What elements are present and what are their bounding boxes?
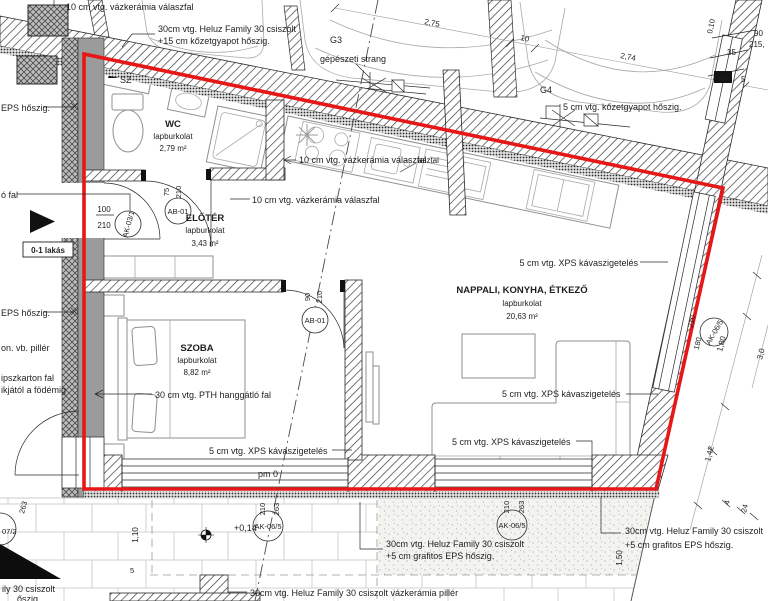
- room-szoba-name: SZOBA: [180, 343, 213, 354]
- szoba-nappali-wall: [345, 280, 362, 460]
- label-xps-c: 5 cm vtg. XPS kávaszigetelés: [209, 446, 328, 456]
- toilet-bowl: [113, 110, 143, 152]
- column-pad: [17, 56, 57, 84]
- label-xps-b: 5 cm vtg. XPS kávaszigetelés: [452, 437, 571, 447]
- dim-1-42: 1,42: [703, 445, 716, 463]
- pillow: [132, 393, 158, 433]
- label-pth: 30 cm vtg. PTH hanggátló fal: [155, 390, 271, 400]
- label-pm0: pm 0: [258, 469, 278, 479]
- label-heluz-grafit-mid-2: +5 cm grafitos EPS hőszig.: [386, 551, 494, 561]
- label-partial-csiszolt: ily 30 csiszolt: [2, 584, 56, 594]
- svg-text:AK-06/5: AK-06/5: [498, 521, 525, 530]
- hall-cabinet: [97, 256, 213, 278]
- room-nappali-finish: lapburkolat: [502, 299, 542, 308]
- label-xps-a: 5 cm vtg. XPS kávaszigetelés: [502, 389, 621, 399]
- dim-entrance-w: 100: [97, 205, 111, 214]
- label-partial-hoszig: őszig.: [17, 594, 41, 601]
- label-heluz-grafit-mid-1: 30cm vtg. Heluz Family 30 csiszolt: [386, 539, 525, 549]
- room-eloter-area: 3,43 m²: [191, 239, 218, 248]
- label-terrace-level: +0,14: [234, 523, 257, 533]
- label-kozetgyapot5: 5 cm vtg. kőzetgyapot hőszig.: [563, 102, 682, 112]
- ceiling-light-icon: [296, 124, 318, 146]
- dim-entrance-h: 210: [97, 221, 111, 230]
- room-wc-area: 2,79 m²: [159, 144, 186, 153]
- room-eloter-name: ELŐTÉR: [186, 212, 225, 224]
- shower-partition: [266, 100, 284, 180]
- svg-text:07/2: 07/2: [2, 527, 17, 536]
- label-heluz-grafit-right-1: 30cm vtg. Heluz Family 30 csiszolt: [625, 526, 764, 536]
- dim-1-50: 1,50: [615, 550, 624, 566]
- left-wall: [78, 38, 104, 497]
- label-partition-mid1: 10 cm vtg. vázkerámia válaszfal: [299, 155, 427, 165]
- dim-215: 215,: [749, 40, 765, 49]
- label-sz: SZ: [120, 75, 132, 85]
- dim-wc-door-h: 210: [174, 186, 183, 199]
- svg-text:AB-01: AB-01: [305, 316, 326, 325]
- dim-30: 30: [719, 74, 728, 83]
- tv-board: [373, 366, 379, 424]
- dim-garage-wall: 10: [520, 33, 531, 44]
- dim-3-0: 3,0: [755, 347, 767, 361]
- door-jamb: [206, 169, 211, 180]
- car-g3-outline: [300, 0, 565, 92]
- dim-wc-door-w: 75: [162, 188, 171, 196]
- room-eloter-finish: lapburkolat: [185, 226, 225, 235]
- room-wc-finish: lapburkolat: [153, 132, 193, 141]
- garage-dimension-line: [331, 4, 768, 90]
- car-g4-bumper: [535, 72, 705, 103]
- dim-5b: 5: [130, 566, 134, 575]
- car-g3-hood: [330, 20, 552, 48]
- bottom-wall-insulation: [84, 491, 660, 498]
- label-eps-1: EPS hőszig.: [1, 103, 50, 113]
- dim-010: 0,10: [705, 18, 717, 34]
- pillow: [132, 326, 158, 366]
- dim-1-80: 1,80: [715, 335, 728, 353]
- dim-24: 24: [739, 503, 750, 513]
- dim-4: 4: [722, 499, 732, 505]
- svg-text:AK-06/5: AK-06/5: [254, 522, 281, 531]
- room-szoba-finish: lapburkolat: [177, 356, 217, 365]
- label-partition-mid2: 10 cm vtg. vázkerámia válaszfal: [252, 195, 380, 205]
- szoba-north-wall: [84, 280, 283, 292]
- door-jamb: [141, 170, 146, 181]
- label-gepeszeti-strang: gépészeti strang: [320, 54, 386, 64]
- dim-g4-bay: 2,74: [620, 51, 638, 63]
- dim-90: 90: [754, 29, 763, 38]
- column-pad: [28, 5, 68, 36]
- dim-szoba-door-h: 210: [315, 291, 324, 304]
- wc-wall-left: [84, 170, 145, 181]
- room-wc-name: WC: [165, 119, 181, 130]
- label-eps-2: EPS hőszig.: [1, 308, 50, 318]
- garage-wall-stub-g3g4: [488, 0, 517, 97]
- svg-text:210: 210: [686, 314, 698, 328]
- terrace-area: [0, 490, 660, 601]
- room-nappali-name: NAPPALI, KONYHA, ÉTKEZŐ: [456, 284, 587, 296]
- label-apartment: 0-1 lakás: [31, 246, 65, 255]
- lower-wall-band: [110, 593, 260, 601]
- label-heluz-kozet-2: +15 cm kőzetgyapot hőszig.: [158, 36, 270, 46]
- room-nappali-area: 20,63 m²: [506, 312, 538, 321]
- label-gipszkarton-2: ikjától a födémig: [1, 385, 66, 395]
- szoba-furniture: [98, 295, 245, 465]
- dim-szoba-door-w: 90: [303, 293, 312, 301]
- label-xps-d: 5 cm vtg. XPS kávaszigetelés: [519, 258, 638, 268]
- label-gipszkarton-1: ipszkarton fal: [1, 373, 54, 383]
- label-asztal: asztal: [418, 156, 439, 165]
- label-heluz-piller: 30cm vtg. Heluz Family 30 csiszolt vázke…: [250, 588, 458, 598]
- coffee-table: [462, 334, 535, 378]
- floorplan-drawing: 10 cm vtg. vázkerámia válaszfal 30cm vtg…: [0, 0, 768, 601]
- bed-headboard: [118, 318, 127, 440]
- dim-5: 5: [741, 75, 746, 84]
- terrace-paving: [0, 498, 378, 601]
- label-o-fal: ó fal: [1, 190, 18, 200]
- dim-1-10: 1,10: [131, 527, 140, 543]
- toilet-tank: [112, 94, 143, 110]
- label-partition-top: 10 cm vtg. vázkerámia válaszfal: [66, 2, 194, 12]
- dim-g3-bay: 2,75: [424, 17, 442, 29]
- label-vb-piller: on. vb. pillér: [1, 343, 50, 353]
- floorplan-page: 10 cm vtg. vázkerámia válaszfal 30cm vtg…: [0, 0, 768, 601]
- label-heluz-kozet-1: 30cm vtg. Heluz Family 30 csiszolt: [158, 24, 297, 34]
- tv-board: [366, 352, 373, 422]
- label-heluz-grafit-right-2: +5 cm grafitos EPS hőszig.: [625, 540, 733, 550]
- label-g3: G3: [330, 35, 342, 45]
- eloter-furniture: [97, 256, 213, 278]
- room-szoba-area: 8,82 m²: [183, 368, 210, 377]
- entrance-arrow-icon: [30, 210, 55, 233]
- nappali-furniture: [366, 334, 630, 470]
- label-g4: G4: [540, 85, 552, 95]
- walls: [0, 0, 768, 498]
- terrace-concrete-zone: [378, 498, 653, 575]
- dim-35: 35: [727, 48, 736, 57]
